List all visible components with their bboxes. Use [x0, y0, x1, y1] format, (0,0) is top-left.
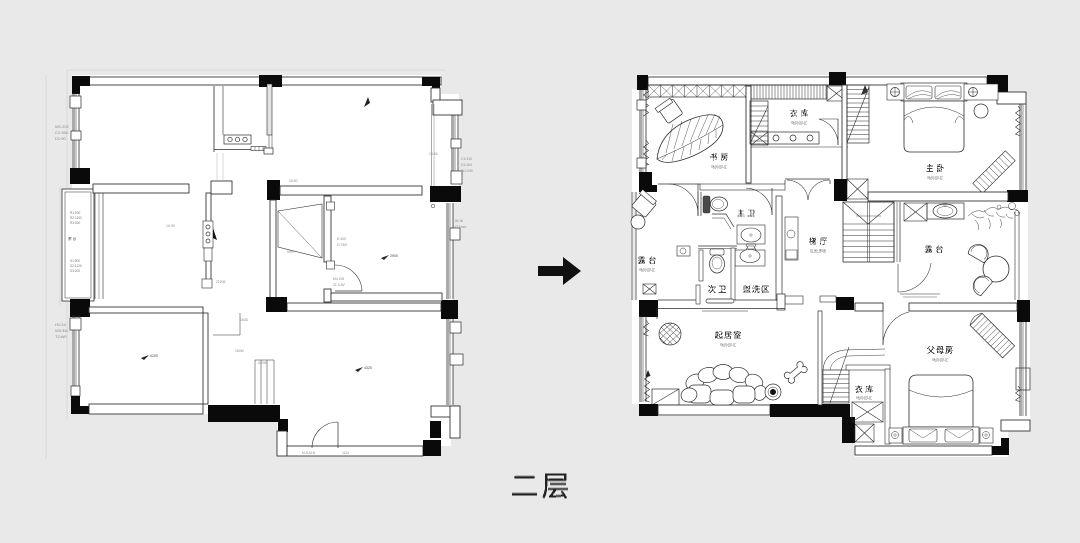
svg-text:I2:1mm: I2:1mm — [455, 225, 466, 229]
svg-text:1110: 1110 — [342, 451, 349, 455]
svg-text:4320: 4320 — [364, 366, 372, 370]
svg-text:R1:900: R1:900 — [70, 211, 81, 215]
svg-text:2900: 2900 — [390, 254, 398, 258]
svg-text:H1:24: H1:24 — [55, 322, 66, 327]
svg-text:W:16: W:16 — [455, 219, 463, 223]
svg-text:M4.196: M4.196 — [333, 277, 344, 281]
svg-text:C1:310: C1:310 — [461, 157, 472, 161]
svg-text:R3:500: R3:500 — [70, 221, 81, 225]
svg-text:6:206: 6:206 — [258, 361, 267, 365]
svg-text:E:400: E:400 — [337, 237, 346, 241]
svg-text:D:790I: D:790I — [337, 243, 347, 247]
svg-text:4200: 4200 — [150, 354, 158, 358]
svg-text:13.56: 13.56 — [429, 152, 438, 156]
svg-text:票 台: 票 台 — [68, 236, 77, 241]
svg-text:D1:90: D1:90 — [55, 136, 66, 141]
svg-text:160W: 160W — [235, 349, 245, 353]
svg-text:18:90: 18:90 — [289, 179, 298, 183]
svg-text:S1:900: S1:900 — [70, 259, 80, 263]
svg-text:050F: 050F — [287, 250, 295, 254]
svg-text:C1:350: C1:350 — [55, 130, 69, 135]
svg-text:21.0.AV: 21.0.AV — [333, 283, 346, 287]
svg-text:21206: 21206 — [216, 280, 226, 284]
svg-text:S2:1120: S2:1120 — [70, 264, 82, 268]
svg-text:S3:200: S3:200 — [70, 269, 80, 273]
svg-text:1X:90: 1X:90 — [166, 224, 175, 228]
svg-text:T2:W0: T2:W0 — [55, 334, 68, 339]
svg-text:W1:202: W1:202 — [55, 124, 70, 129]
svg-text:D1:194: D1:194 — [461, 163, 472, 167]
svg-text:160D: 160D — [240, 318, 249, 322]
svg-text:W3:34L: W3:34L — [55, 328, 70, 333]
svg-text:M-8-M-B: M-8-M-B — [302, 451, 316, 455]
svg-text:R2:1150: R2:1150 — [70, 216, 82, 220]
svg-text:W1:240: W1:240 — [461, 169, 473, 173]
